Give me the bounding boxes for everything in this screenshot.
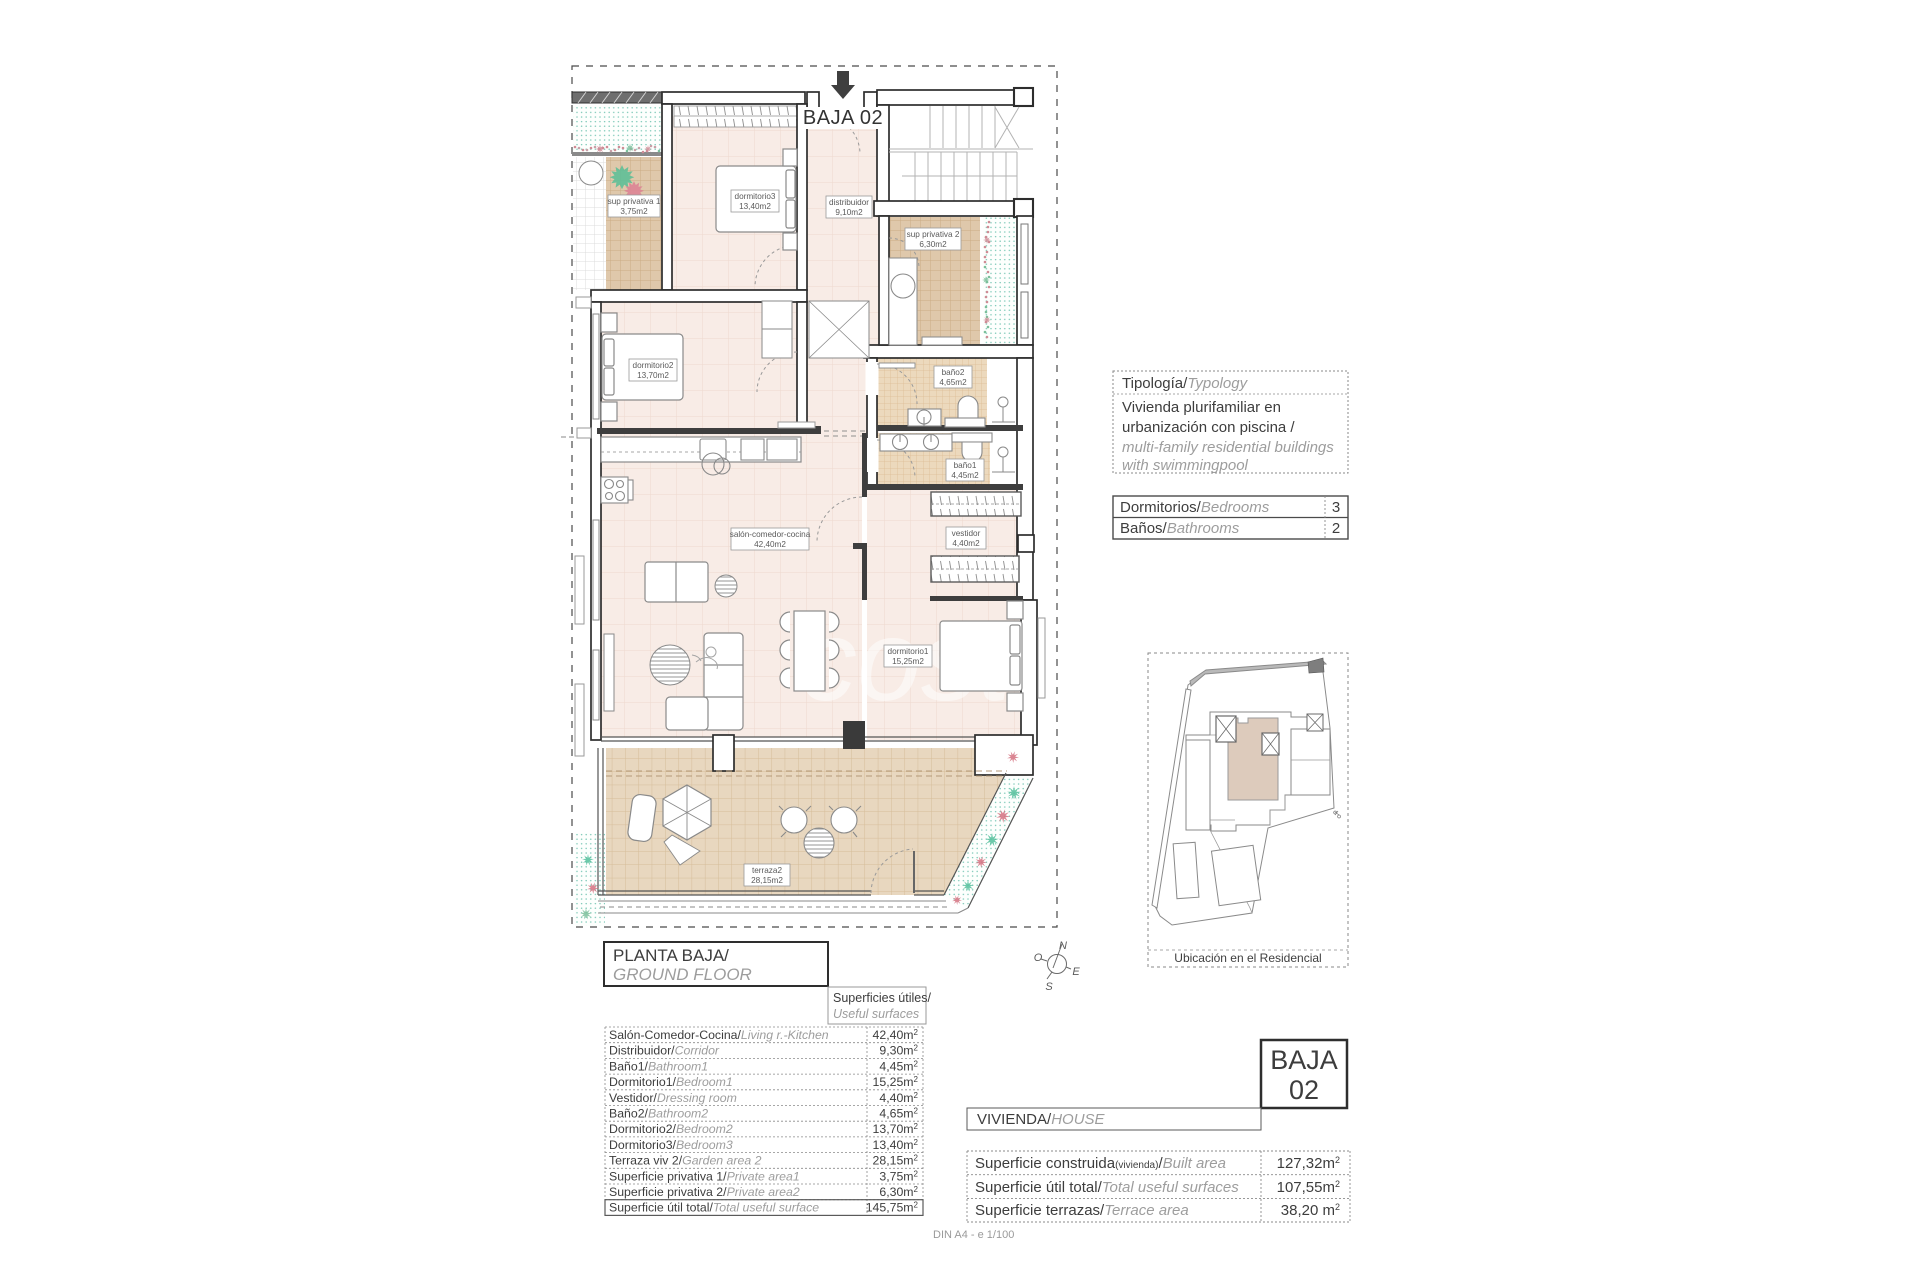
svg-text:Dormitorio3/Bedroom3: Dormitorio3/Bedroom3 <box>609 1138 733 1152</box>
svg-text:107,55m2: 107,55m2 <box>1277 1179 1340 1196</box>
svg-text:sup privativa 2: sup privativa 2 <box>907 230 960 239</box>
svg-text:terraza2: terraza2 <box>752 866 782 875</box>
svg-text:BAJA 02: BAJA 02 <box>803 107 883 129</box>
svg-text:PLANTA BAJA/: PLANTA BAJA/ <box>613 946 729 965</box>
svg-text:VIVIENDA/HOUSE: VIVIENDA/HOUSE <box>977 1111 1106 1128</box>
svg-text:DIN A4 - e 1/100: DIN A4 - e 1/100 <box>933 1229 1014 1241</box>
svg-text:dormitorio3: dormitorio3 <box>735 192 776 201</box>
svg-text:with swimmingpool: with swimmingpool <box>1122 457 1249 474</box>
svg-text:Dormitorio2/Bedroom2: Dormitorio2/Bedroom2 <box>609 1122 733 1136</box>
svg-text:Ubicación en el Residencial: Ubicación en el Residencial <box>1174 951 1321 965</box>
svg-text:sup privativa 1: sup privativa 1 <box>608 197 661 206</box>
svg-text:Distribuidor/Corridor: Distribuidor/Corridor <box>609 1044 720 1058</box>
svg-text:28,15m2: 28,15m2 <box>873 1154 919 1168</box>
svg-text:urbanización con piscina /: urbanización con piscina / <box>1122 419 1295 436</box>
svg-text:15,25m2: 15,25m2 <box>892 657 924 666</box>
svg-text:Baño1/Bathroom1: Baño1/Bathroom1 <box>609 1059 708 1073</box>
svg-text:E: E <box>1072 966 1080 978</box>
svg-text:4,45m2: 4,45m2 <box>879 1059 918 1073</box>
svg-text:3,75m2: 3,75m2 <box>879 1169 918 1183</box>
svg-text:BAJA: BAJA <box>1270 1045 1338 1075</box>
svg-text:13,40m2: 13,40m2 <box>739 202 771 211</box>
svg-text:multi-family residential build: multi-family residential buildings <box>1122 439 1334 456</box>
svg-text:4,40m2: 4,40m2 <box>879 1091 918 1105</box>
svg-text:9,10m2: 9,10m2 <box>835 208 863 217</box>
svg-text:Superficie útil total/Total us: Superficie útil total/Total useful surfa… <box>609 1201 819 1215</box>
svg-text:28,15m2: 28,15m2 <box>751 876 783 885</box>
svg-text:dormitorio2: dormitorio2 <box>633 361 674 370</box>
svg-text:Tipología/Typology: Tipología/Typology <box>1122 375 1249 392</box>
svg-text:4,65m2: 4,65m2 <box>939 378 967 387</box>
svg-text:2: 2 <box>1332 520 1340 537</box>
svg-text:9,30m2: 9,30m2 <box>879 1044 918 1058</box>
svg-text:13,70m2: 13,70m2 <box>873 1122 919 1136</box>
svg-text:02: 02 <box>1289 1075 1319 1105</box>
svg-text:42,40m2: 42,40m2 <box>754 540 786 549</box>
svg-text:Superficie privativa 1/Private: Superficie privativa 1/Private area1 <box>609 1169 800 1183</box>
svg-text:Terraza viv 2/Garden area 2: Terraza viv 2/Garden area 2 <box>609 1154 762 1168</box>
svg-text:Superficie construida(vivienda: Superficie construida(vivienda)/Built ar… <box>975 1155 1226 1172</box>
svg-text:Dormitorios/Bedrooms: Dormitorios/Bedrooms <box>1120 499 1270 516</box>
svg-text:Baño2/Bathroom2: Baño2/Bathroom2 <box>609 1107 708 1121</box>
svg-text:baño1: baño1 <box>954 461 977 470</box>
svg-text:3: 3 <box>1332 499 1340 516</box>
svg-text:vestidor: vestidor <box>952 529 981 538</box>
svg-text:13,40m2: 13,40m2 <box>873 1138 919 1152</box>
svg-text:4,65m2: 4,65m2 <box>879 1107 918 1121</box>
svg-text:145,75m2: 145,75m2 <box>866 1201 919 1215</box>
svg-text:dormitorio1: dormitorio1 <box>888 647 929 656</box>
svg-text:Salón-Comedor-Cocina/Living r.: Salón-Comedor-Cocina/Living r.-Kitchen <box>609 1028 829 1042</box>
svg-text:15,25m2: 15,25m2 <box>873 1075 919 1089</box>
svg-text:Dormitorio1/Bedroom1: Dormitorio1/Bedroom1 <box>609 1075 733 1089</box>
svg-text:6,30m2: 6,30m2 <box>919 240 947 249</box>
svg-text:127,32m2: 127,32m2 <box>1277 1155 1340 1172</box>
svg-text:42,40m2: 42,40m2 <box>873 1028 919 1042</box>
svg-text:baño2: baño2 <box>942 368 965 377</box>
svg-text:4,45m2: 4,45m2 <box>951 471 979 480</box>
svg-text:S: S <box>1045 981 1053 993</box>
svg-text:GROUND FLOOR: GROUND FLOOR <box>613 965 752 984</box>
svg-text:38,20 m2: 38,20 m2 <box>1281 1202 1340 1219</box>
svg-text:salón-comedor-cocina: salón-comedor-cocina <box>730 530 811 539</box>
svg-text:Superficie útil total/Total us: Superficie útil total/Total useful surfa… <box>975 1179 1239 1196</box>
svg-text:Superficie privativa 2/Private: Superficie privativa 2/Private area2 <box>609 1185 800 1199</box>
svg-text:13,70m2: 13,70m2 <box>637 371 669 380</box>
svg-text:3,75m2: 3,75m2 <box>620 207 648 216</box>
svg-text:Baños/Bathrooms: Baños/Bathrooms <box>1120 520 1240 537</box>
svg-text:Superficies útiles/: Superficies útiles/ <box>833 991 931 1005</box>
svg-text:Useful surfaces: Useful surfaces <box>833 1007 919 1021</box>
svg-text:Superficie terrazas/Terrace ar: Superficie terrazas/Terrace area <box>975 1202 1189 1219</box>
svg-text:4,40m2: 4,40m2 <box>952 539 980 548</box>
svg-text:Vestidor/Dressing room: Vestidor/Dressing room <box>609 1091 737 1105</box>
svg-text:Vivienda plurifamiliar en: Vivienda plurifamiliar en <box>1122 399 1281 416</box>
svg-text:distribuidor: distribuidor <box>829 198 869 207</box>
svg-text:N: N <box>1059 940 1067 952</box>
svg-text:O: O <box>1034 952 1043 964</box>
svg-text:6,30m2: 6,30m2 <box>879 1185 918 1199</box>
